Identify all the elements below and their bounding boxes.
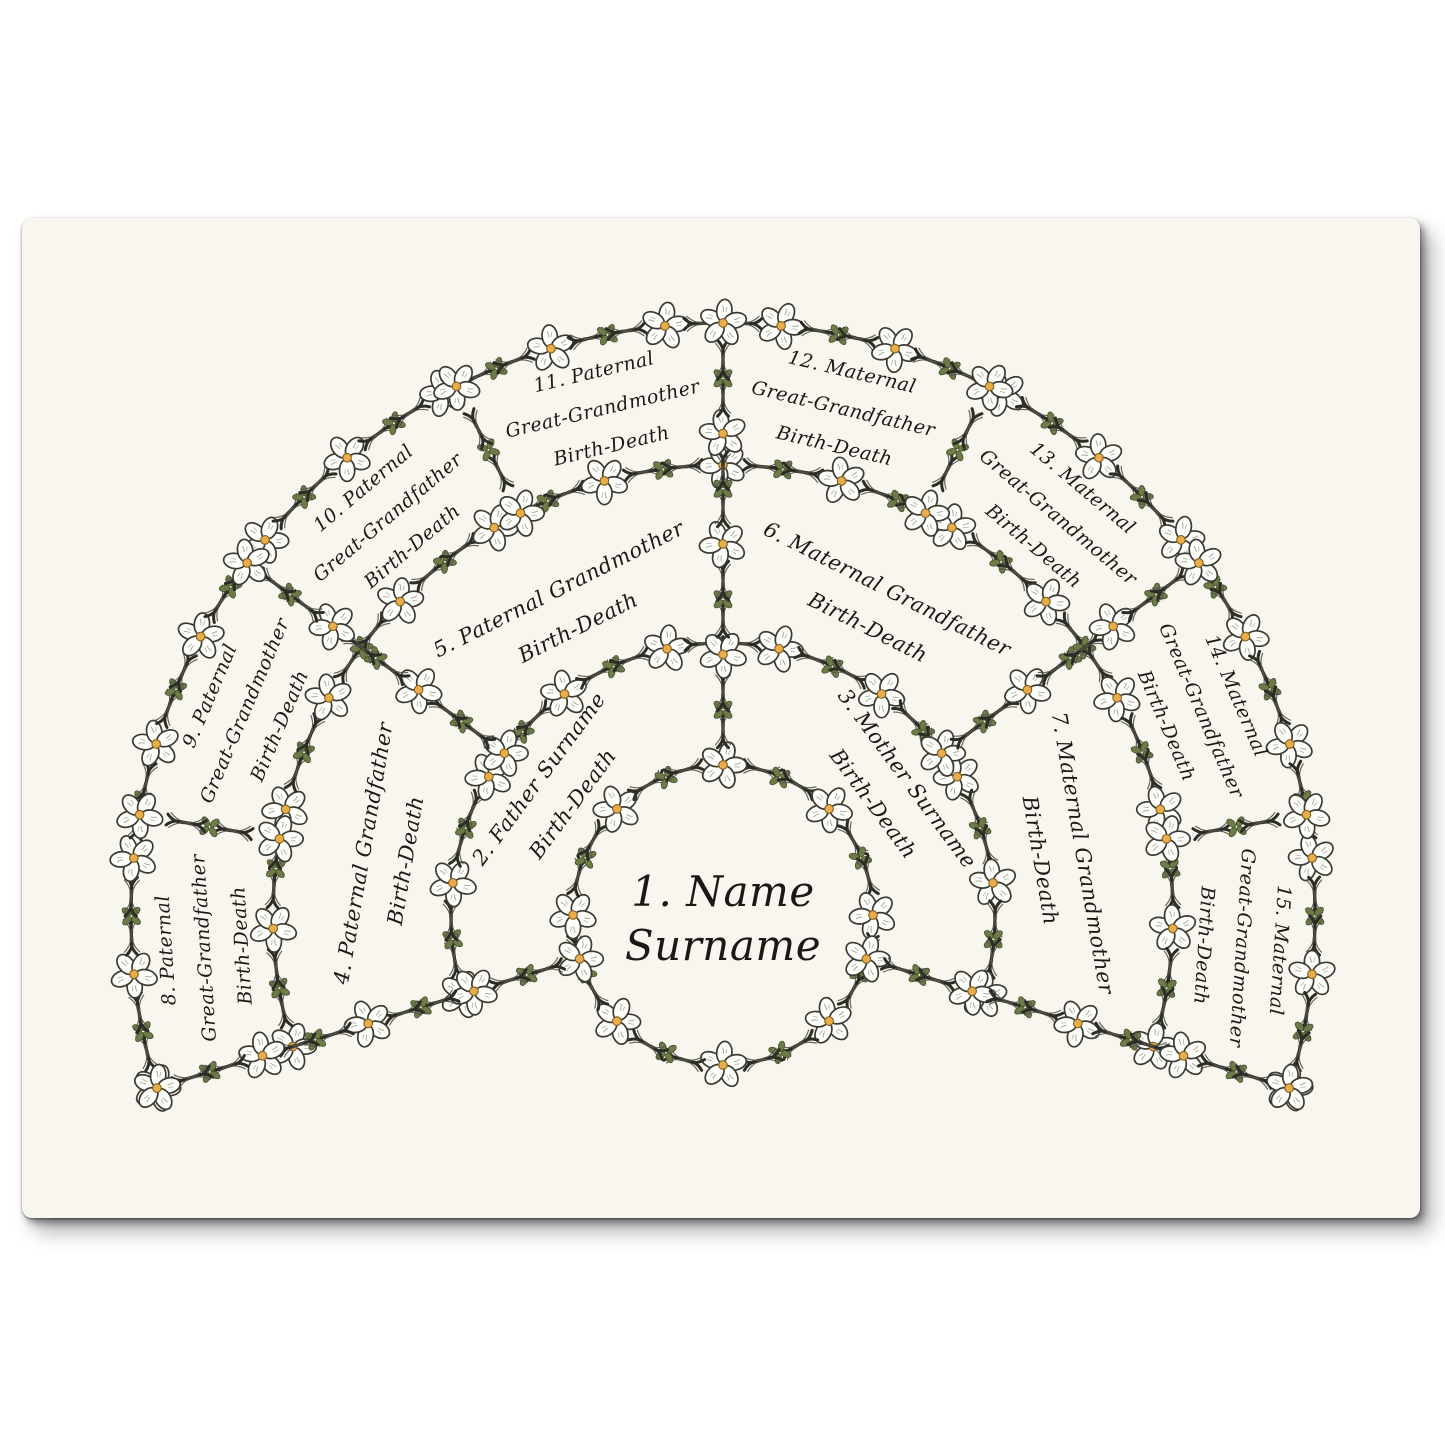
slice-7-line-1: Birth-Death xyxy=(1017,793,1063,927)
slice-8-line-0: 8. Paternal xyxy=(152,894,181,1006)
slice-15-line-1: Great-Grandmother xyxy=(1225,848,1260,1049)
poster: 2. Father SurnameBirth-Death3. Mother Su… xyxy=(22,218,1420,1218)
center-person-surname: Surname xyxy=(625,921,821,970)
slice-15-line-0: 15. Maternal xyxy=(1265,884,1295,1016)
fan-chart-svg: 2. Father SurnameBirth-Death3. Mother Su… xyxy=(22,218,1420,1218)
slice-7-line-0: 7. Maternal Grandmother xyxy=(1047,710,1119,997)
slice-4-line-0: 4. Paternal Grandfather xyxy=(329,719,398,987)
slice-4-line-1: Birth-Death xyxy=(383,794,429,928)
slice-15-line-2: Birth-Death xyxy=(1189,885,1219,1006)
slice-8-line-1: Great-Grandfather xyxy=(187,852,221,1042)
center-person-name: 1. Name xyxy=(631,867,814,916)
slice-8-line-2: Birth-Death xyxy=(227,886,257,1007)
